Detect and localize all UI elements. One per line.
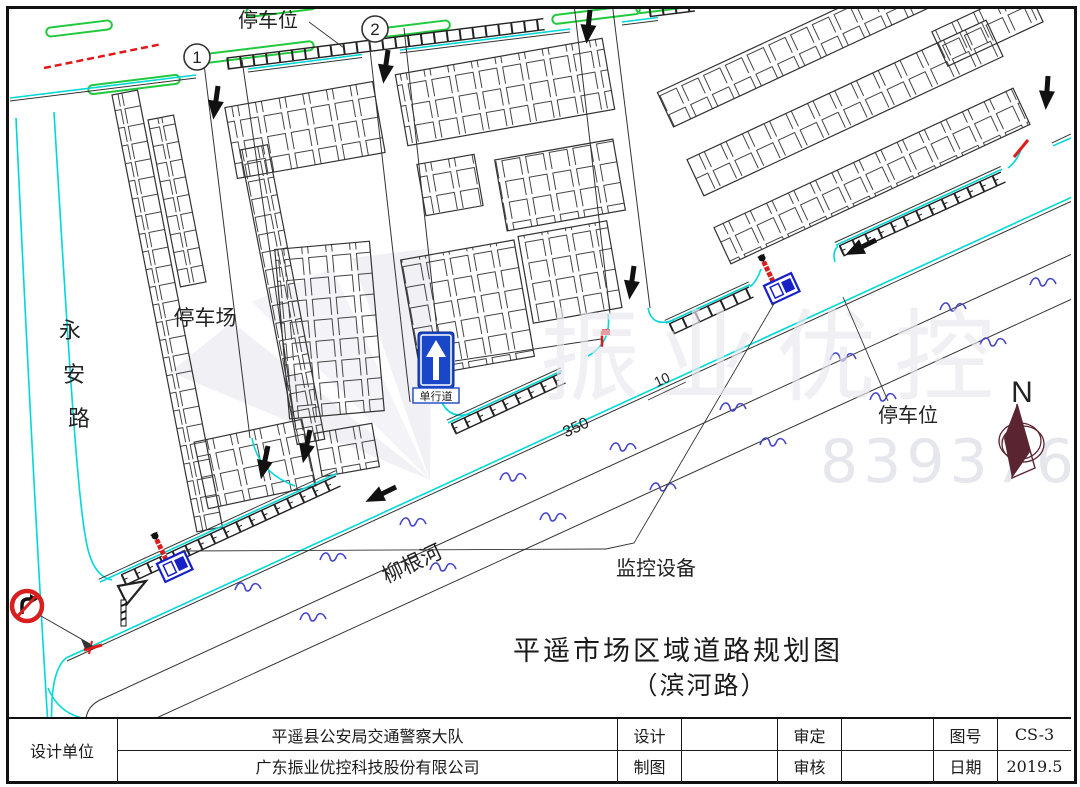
design-unit-1: 平遥县公安局交通警察大队 [117,719,617,750]
red-marking-line [44,44,162,68]
route-point-1: 1 [184,44,210,70]
no-right-turn-sign [12,591,93,649]
yield-sign [118,581,146,626]
approve-value [841,719,933,750]
yongan-road-label: 安 [63,362,85,387]
svg-text:2: 2 [370,20,379,39]
liugen-river-label: 柳根河 [379,540,446,587]
watermark-text: 振业优控 839376 [540,299,1079,497]
svg-text:1: 1 [192,48,201,67]
parking-spot-right-label: 停车位 [878,404,938,427]
yongan-road [16,112,112,758]
route-point-2: 2 [362,16,388,42]
compass-north-label: N [1011,376,1033,409]
drawing-title: 平遥市场区域道路规划图 （滨河路） [513,636,843,700]
yongan-road-label: 路 [68,406,90,431]
drawing-no-label: 图号 [933,719,997,750]
draft-value [681,750,777,781]
title-block: 设计单位 平遥县公安局交通警察大队 设计 审定 图号 CS-3 广东振业优控科技… [7,717,1071,781]
approve-label: 审定 [777,719,841,750]
page-subtitle: （滨河路） [632,671,767,700]
watermark-brand: 振业优控 [540,299,1012,416]
monitor-device-label: 监控设备 [616,557,696,580]
parking-spot-top-label: 停车位 [238,9,298,32]
date-value: 2019.5 [997,750,1071,781]
date-label: 日期 [933,750,997,781]
drawing-no-value: CS-3 [997,719,1071,750]
review-value [841,750,933,781]
design-value [681,719,777,750]
parking-lot-label: 停车场 [174,307,237,330]
design-label: 设计 [617,719,681,750]
plan-sheet: 单行道 1 2 振业优控 8393 [0,0,1080,787]
design-unit-label: 设计单位 [7,719,117,781]
review-label: 审核 [777,750,841,781]
yongan-road-label: 永 [59,318,81,343]
one-way-sign-label: 单行道 [420,389,453,403]
design-unit-2: 广东振业优控科技股份有限公司 [117,750,617,781]
draft-label: 制图 [617,750,681,781]
page-title: 平遥市场区域道路规划图 [513,636,843,667]
plan-drawing: 单行道 1 2 振业优控 8393 [0,0,1080,787]
